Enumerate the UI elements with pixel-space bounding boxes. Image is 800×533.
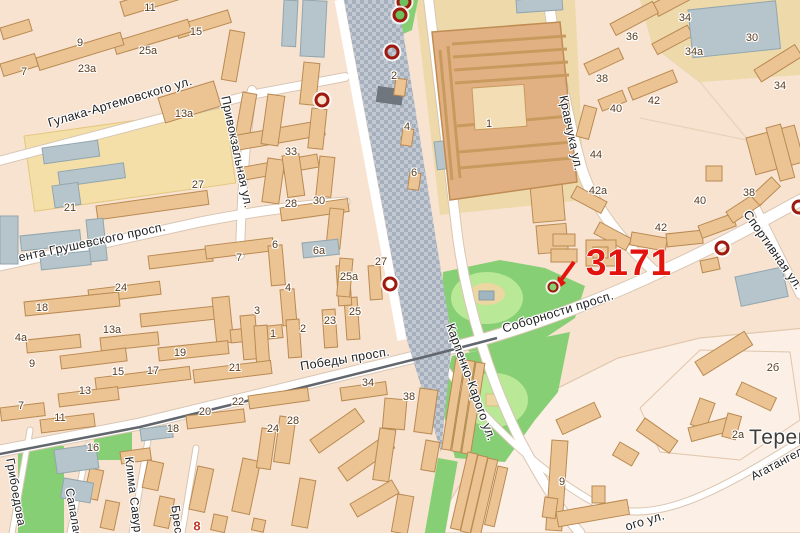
- house-number-27: 28: [285, 198, 297, 210]
- street-label-10: Грибоедова: [3, 457, 29, 527]
- street-label-13: Брестская: [168, 504, 189, 533]
- house-number-34: 25: [349, 306, 361, 318]
- street-label-11: Сапалаева: [62, 487, 87, 533]
- house-number-48: 38: [743, 187, 755, 199]
- house-number-42: 1: [486, 118, 492, 130]
- house-number-6: 13а: [175, 108, 193, 120]
- house-number-59: 24: [267, 423, 279, 435]
- map-marker-5[interactable]: [715, 241, 730, 256]
- map-viewport[interactable]: Гулака-Артемовского ул.Привокзальная ул.…: [0, 0, 800, 533]
- house-number-33: 4: [285, 282, 291, 294]
- house-number-18: 17: [147, 365, 159, 377]
- house-number-15: 19: [174, 347, 186, 359]
- house-number-19: 21: [229, 362, 241, 374]
- house-number-8: 27: [192, 179, 204, 191]
- house-number-5: 7: [21, 66, 27, 78]
- house-number-63: 8: [193, 519, 200, 533]
- street-label-9: ого ул.: [624, 508, 667, 533]
- house-number-46: 42а: [589, 185, 607, 197]
- house-number-3: 25а: [139, 45, 157, 57]
- house-number-31: 27: [375, 256, 387, 268]
- house-number-51: 36: [626, 31, 638, 43]
- street-label-7: Спортивная ул.: [740, 208, 800, 293]
- house-number-16: 9: [29, 358, 35, 370]
- house-number-40: 4: [404, 121, 410, 133]
- house-number-28: 30: [313, 195, 325, 207]
- house-number-1: 15: [190, 26, 202, 38]
- house-number-21: 7: [18, 400, 24, 412]
- house-number-55: 34: [774, 80, 786, 92]
- house-number-10: 24: [115, 282, 127, 294]
- house-number-53: 34а: [685, 46, 703, 58]
- street-label-2: ента Грушевского просп.: [17, 220, 167, 265]
- house-number-25: 18: [167, 423, 179, 435]
- poi-big-label: 3171: [586, 242, 672, 284]
- map-marker-1[interactable]: [393, 8, 408, 23]
- street-label-6: Кравчука ул.: [556, 94, 586, 172]
- house-number-11: 18: [36, 302, 48, 314]
- place-label: Теремно: [749, 426, 800, 450]
- house-number-17: 15: [112, 366, 124, 378]
- house-number-56: 34: [362, 377, 374, 389]
- street-label-3: Победы просп.: [299, 345, 391, 374]
- house-number-36: 2: [300, 323, 306, 335]
- house-number-20: 13: [79, 385, 91, 397]
- house-number-2: 9: [77, 37, 83, 49]
- house-number-58: 28: [287, 415, 299, 427]
- map-marker-3[interactable]: [315, 93, 330, 108]
- house-number-4: 23а: [78, 63, 96, 75]
- house-number-23: 22: [232, 396, 244, 408]
- map-overlay: Гулака-Артемовского ул.Привокзальная ул.…: [0, 0, 800, 533]
- house-number-54: 42: [648, 95, 660, 107]
- house-number-62: 9: [559, 476, 565, 488]
- map-marker-2[interactable]: [385, 45, 400, 60]
- house-number-26: 16: [87, 442, 99, 454]
- house-number-49: 42: [655, 222, 667, 234]
- house-number-13: 4а: [15, 332, 27, 344]
- street-label-4: Соборности просп.: [501, 288, 616, 335]
- house-number-24: 20: [199, 406, 211, 418]
- house-number-50: 34: [679, 12, 691, 24]
- house-number-41: 6: [411, 167, 417, 179]
- house-number-61: 2а: [732, 429, 744, 441]
- street-label-8: Агатангела: [748, 441, 800, 484]
- house-number-35: 23: [324, 315, 336, 327]
- house-number-30: 6а: [313, 245, 325, 257]
- house-number-38: 33: [285, 146, 297, 158]
- house-number-0: 11: [144, 2, 155, 14]
- street-label-1: Привокзальная ул.: [218, 95, 255, 210]
- house-number-60: 2б: [767, 362, 779, 374]
- house-number-47: 40: [694, 195, 706, 207]
- house-number-37: 1: [270, 328, 276, 340]
- house-number-32: 25а: [340, 271, 358, 283]
- map-marker-6[interactable]: [792, 200, 800, 215]
- house-number-22: 11: [54, 412, 65, 424]
- street-label-0: Гулака-Артемовского ул.: [46, 74, 194, 130]
- house-number-52: 30: [746, 32, 758, 44]
- street-label-5: Карпенко-Карого ул.: [443, 321, 499, 442]
- street-label-12: Клима Савура: [122, 456, 146, 533]
- map-marker-4[interactable]: [383, 277, 398, 292]
- poi-marker[interactable]: [548, 282, 559, 293]
- house-number-29: 6: [272, 239, 278, 251]
- house-number-45: 44: [590, 149, 602, 161]
- house-number-7: 21: [64, 202, 76, 214]
- house-number-57: 38: [403, 391, 415, 403]
- house-number-39: 2: [391, 70, 397, 82]
- house-number-9: 7: [236, 252, 242, 264]
- house-number-43: 38: [596, 73, 608, 85]
- house-number-44: 40: [610, 103, 622, 115]
- house-number-12: 3: [254, 305, 260, 317]
- house-number-14: 13а: [103, 324, 121, 336]
